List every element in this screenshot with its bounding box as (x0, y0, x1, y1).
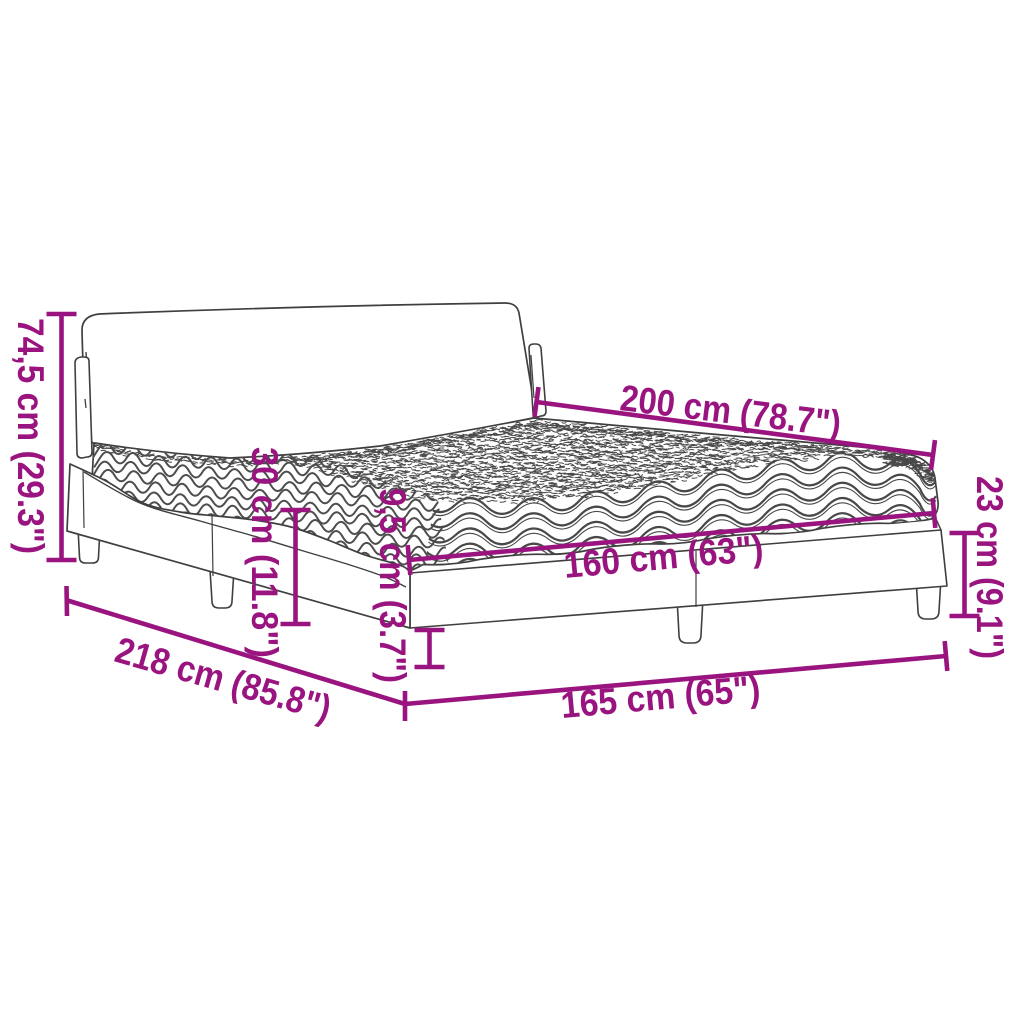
svg-text:23 cm (9.1"): 23 cm (9.1") (969, 476, 1010, 659)
svg-text:30 cm (11.8"): 30 cm (11.8") (244, 447, 285, 658)
svg-text:9,5 cm (3.7"): 9,5 cm (3.7") (372, 488, 413, 683)
svg-text:74,5 cm (29.3"): 74,5 cm (29.3") (10, 318, 51, 554)
